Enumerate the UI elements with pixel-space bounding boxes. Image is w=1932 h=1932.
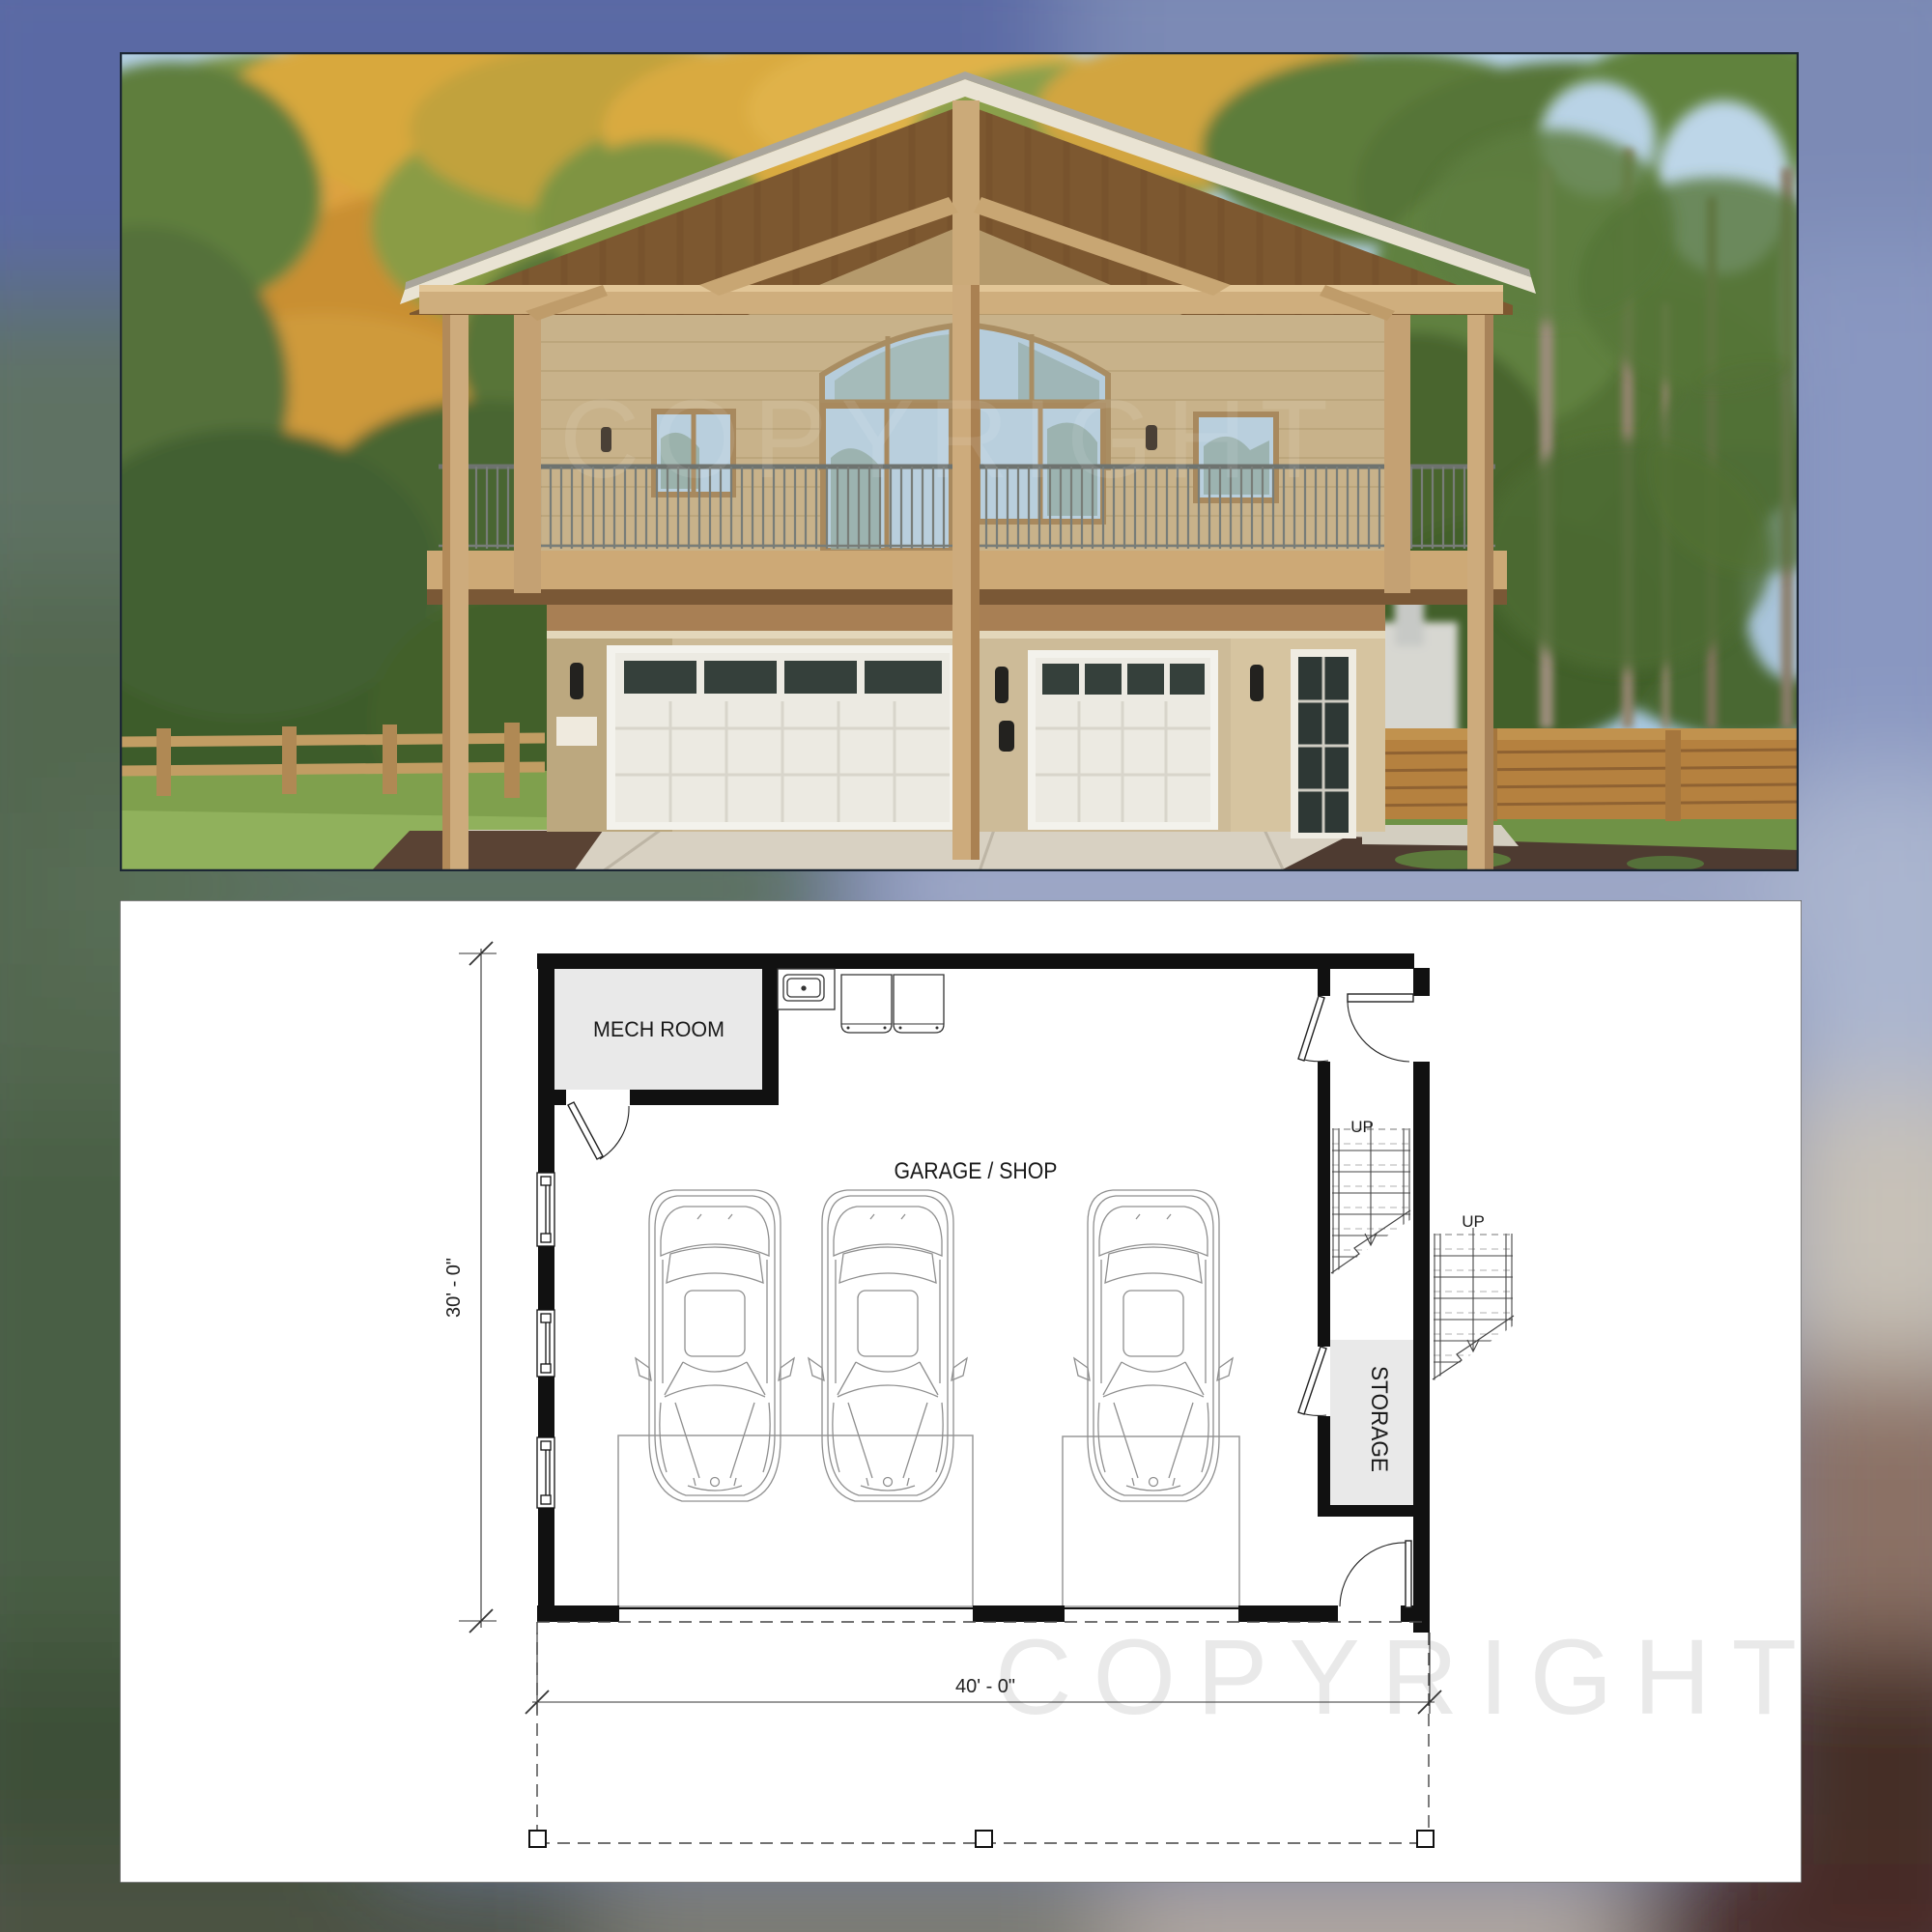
svg-text:COPYRIGHT: COPYRIGHT [559,378,1342,501]
svg-text:UP: UP [1462,1212,1485,1231]
svg-text:GARAGE / SHOP: GARAGE / SHOP [895,1158,1058,1184]
svg-text:COPYRIGHT: COPYRIGHT [995,1618,1802,1737]
svg-text:STORAGE: STORAGE [1366,1366,1392,1472]
svg-text:40' - 0": 40' - 0" [955,1676,1015,1697]
svg-text:MECH ROOM: MECH ROOM [593,1017,724,1041]
svg-text:UP: UP [1350,1118,1374,1136]
svg-text:30' - 0": 30' - 0" [443,1258,465,1318]
